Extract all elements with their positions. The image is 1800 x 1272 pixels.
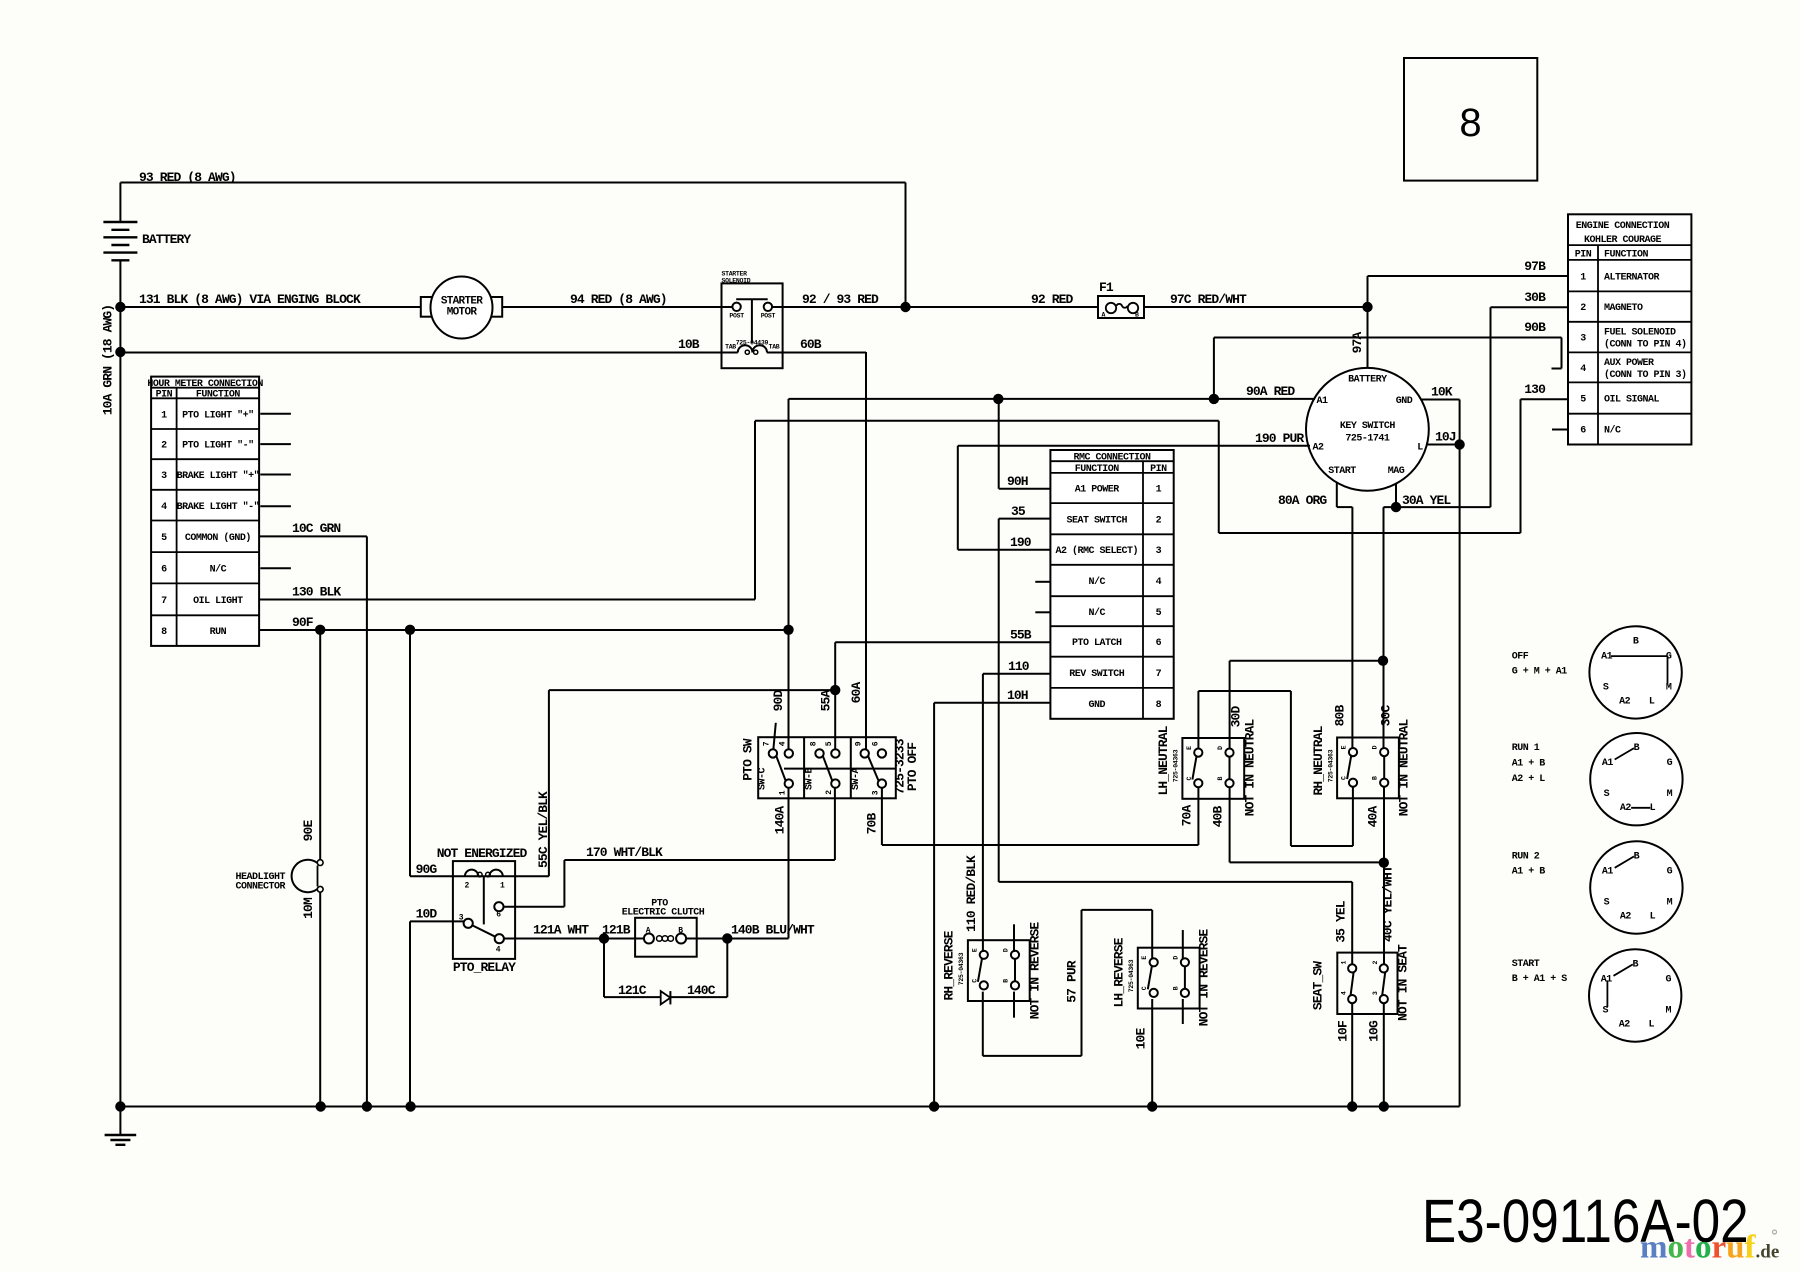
svg-text:35 YEL: 35 YEL <box>1334 900 1349 943</box>
svg-text:E: E <box>971 948 978 952</box>
svg-text:M: M <box>1666 682 1672 693</box>
svg-text:B: B <box>1633 636 1639 647</box>
svg-text:START: START <box>1512 959 1540 970</box>
svg-text:MAG: MAG <box>1388 466 1405 477</box>
svg-text:B: B <box>1632 960 1638 971</box>
svg-text:PTO LIGHT "-": PTO LIGHT "-" <box>182 440 254 452</box>
svg-text:PIN: PIN <box>1150 464 1167 475</box>
svg-text:SEAT_SW: SEAT_SW <box>1311 961 1326 1010</box>
svg-text:97B: 97B <box>1524 259 1546 274</box>
svg-text:30D: 30D <box>1229 706 1244 728</box>
svg-text:130: 130 <box>1524 382 1546 397</box>
svg-text:LH_REVERSE: LH_REVERSE <box>1112 937 1127 1007</box>
svg-text:6: 6 <box>872 741 881 746</box>
svg-text:10C GRN: 10C GRN <box>292 521 340 536</box>
svg-text:B: B <box>1135 312 1139 319</box>
svg-text:TAB: TAB <box>769 344 780 351</box>
svg-text:FUNCTION: FUNCTION <box>1604 249 1649 260</box>
svg-text:60B: 60B <box>800 337 822 352</box>
svg-text:30A YEL: 30A YEL <box>1402 493 1451 508</box>
svg-text:97C RED/WHT: 97C RED/WHT <box>1170 292 1247 307</box>
svg-text:A1 + B: A1 + B <box>1512 758 1546 769</box>
svg-text:TAB: TAB <box>725 344 736 351</box>
svg-text:PTO LATCH: PTO LATCH <box>1072 638 1122 649</box>
svg-text:3: 3 <box>1372 991 1379 995</box>
svg-text:725-1741: 725-1741 <box>1345 434 1390 445</box>
svg-text:10A GRN (18 AWG): 10A GRN (18 AWG) <box>101 305 116 415</box>
svg-text:MOTOR: MOTOR <box>447 307 478 319</box>
svg-text:RH_REVERSE: RH_REVERSE <box>942 930 957 1000</box>
svg-text:4: 4 <box>496 946 501 955</box>
svg-text:190 PUR: 190 PUR <box>1255 431 1304 446</box>
svg-text:C: C <box>1186 777 1193 781</box>
svg-text:FUNCTION: FUNCTION <box>1075 464 1120 475</box>
svg-text:POST: POST <box>761 313 776 320</box>
svg-text:725-04363: 725-04363 <box>1173 749 1180 782</box>
svg-text:10G: 10G <box>1367 1020 1382 1042</box>
svg-text:A1 POWER: A1 POWER <box>1075 485 1120 496</box>
svg-text:725-04363: 725-04363 <box>1327 749 1334 782</box>
svg-text:10F: 10F <box>1336 1020 1351 1042</box>
svg-text:F1: F1 <box>1099 280 1114 295</box>
svg-text:N/C: N/C <box>210 563 227 575</box>
svg-text:55B: 55B <box>1010 628 1032 643</box>
svg-text:RMC CONNECTION: RMC CONNECTION <box>1074 452 1152 463</box>
svg-text:90G: 90G <box>416 862 438 877</box>
svg-text:L: L <box>1417 443 1423 454</box>
svg-text:94 RED (8 AWG): 94 RED (8 AWG) <box>570 292 667 307</box>
svg-text:RUN: RUN <box>210 627 227 638</box>
svg-text:A2: A2 <box>1619 696 1631 707</box>
svg-text:B: B <box>1634 852 1640 863</box>
svg-text:6: 6 <box>1580 426 1586 437</box>
svg-text:AUX POWER: AUX POWER <box>1604 358 1654 369</box>
svg-text:90E: 90E <box>301 820 316 842</box>
svg-text:6: 6 <box>496 911 501 920</box>
svg-text:A1: A1 <box>1601 651 1613 662</box>
svg-text:S: S <box>1603 682 1609 693</box>
svg-text:70A: 70A <box>1180 805 1195 827</box>
svg-text:A2: A2 <box>1312 443 1324 454</box>
svg-text:N/C: N/C <box>1088 607 1105 619</box>
svg-text:140C: 140C <box>687 983 716 998</box>
svg-text:N/C: N/C <box>1604 425 1621 437</box>
svg-text:START: START <box>1328 466 1356 477</box>
svg-text:NOT IN NEUTRAL: NOT IN NEUTRAL <box>1243 719 1258 817</box>
svg-text:COMMON (GND): COMMON (GND) <box>185 532 251 544</box>
svg-text:4: 4 <box>1341 991 1348 995</box>
svg-text:A1 + B: A1 + B <box>1512 867 1546 878</box>
svg-text:190: 190 <box>1010 535 1032 550</box>
svg-text:B: B <box>1372 776 1379 780</box>
svg-text:A2: A2 <box>1620 912 1632 923</box>
svg-text:L: L <box>1648 1020 1654 1031</box>
svg-text:1: 1 <box>1156 485 1162 496</box>
svg-text:C: C <box>1341 776 1348 780</box>
svg-text:CONNECTOR: CONNECTOR <box>235 882 285 893</box>
svg-text:3: 3 <box>1580 334 1586 345</box>
svg-text:92 RED: 92 RED <box>1031 292 1074 307</box>
svg-text:SW-C: SW-C <box>758 768 769 791</box>
svg-text:5: 5 <box>1156 608 1162 619</box>
svg-text:D: D <box>1217 746 1224 750</box>
svg-text:NOT IN REVERSE: NOT IN REVERSE <box>1197 929 1212 1027</box>
svg-text:2: 2 <box>464 882 469 891</box>
svg-text:35: 35 <box>1011 504 1026 519</box>
svg-text:6: 6 <box>1156 638 1162 649</box>
svg-text:8: 8 <box>809 741 818 746</box>
svg-text:121C: 121C <box>618 983 647 998</box>
svg-text:PIN: PIN <box>1575 249 1592 260</box>
svg-text:4: 4 <box>1580 364 1586 375</box>
svg-text:SW-A: SW-A <box>851 768 862 791</box>
svg-text:KOHLER COURAGE: KOHLER COURAGE <box>1584 235 1662 246</box>
svg-text:NOT IN NEUTRAL: NOT IN NEUTRAL <box>1397 719 1412 817</box>
svg-text:90D: 90D <box>771 690 786 712</box>
svg-text:S: S <box>1604 789 1610 800</box>
svg-text:ALTERNATOR: ALTERNATOR <box>1604 272 1660 283</box>
svg-text:A: A <box>646 927 651 936</box>
svg-text:A1: A1 <box>1602 867 1614 878</box>
svg-text:110 RED/BLK: 110 RED/BLK <box>964 855 979 932</box>
svg-text:B + A1 + S: B + A1 + S <box>1512 974 1568 985</box>
svg-text:M: M <box>1665 1006 1671 1017</box>
svg-text:90A RED: 90A RED <box>1246 384 1295 399</box>
svg-text:KEY SWITCH: KEY SWITCH <box>1340 421 1396 432</box>
svg-text:PIN: PIN <box>156 390 173 401</box>
svg-text:E: E <box>1186 746 1193 750</box>
svg-text:MAGNETO: MAGNETO <box>1604 303 1643 314</box>
svg-text:B: B <box>1634 743 1640 754</box>
svg-text:C: C <box>971 979 978 983</box>
svg-text:10E: 10E <box>1134 1028 1149 1050</box>
svg-text:NOT ENERGIZED: NOT ENERGIZED <box>437 846 528 861</box>
svg-text:10D: 10D <box>416 907 438 922</box>
svg-text:40B: 40B <box>1211 806 1226 828</box>
svg-text:10J: 10J <box>1435 430 1456 445</box>
svg-text:ELECTRIC CLUTCH: ELECTRIC CLUTCH <box>622 908 705 919</box>
svg-text:PTO OFF: PTO OFF <box>905 742 920 791</box>
svg-text:40A: 40A <box>1366 806 1381 828</box>
svg-text:M: M <box>1667 789 1673 800</box>
svg-text:NOT IN REVERSE: NOT IN REVERSE <box>1028 922 1043 1020</box>
svg-text:S: S <box>1604 898 1610 909</box>
svg-text:10H: 10H <box>1007 688 1028 703</box>
svg-text:80B: 80B <box>1333 705 1348 727</box>
svg-text:30B: 30B <box>1524 290 1546 305</box>
svg-text:FUNCTION: FUNCTION <box>196 390 241 401</box>
svg-text:RUN 2: RUN 2 <box>1512 852 1540 863</box>
svg-text:D: D <box>1003 948 1010 952</box>
svg-text:121A WHT: 121A WHT <box>533 923 589 938</box>
svg-text:A2 (RMC SELECT): A2 (RMC SELECT) <box>1055 545 1138 557</box>
svg-text:A1: A1 <box>1601 975 1613 986</box>
svg-text:140A: 140A <box>773 806 788 835</box>
svg-text:RUN 1: RUN 1 <box>1512 743 1540 754</box>
svg-text:55C YEL/BLK: 55C YEL/BLK <box>536 791 551 868</box>
svg-text:ENGINE CONNECTION: ENGINE CONNECTION <box>1576 221 1670 232</box>
svg-text:5: 5 <box>1580 395 1586 406</box>
svg-text:PTO SW: PTO SW <box>741 738 756 781</box>
svg-text:1: 1 <box>779 790 788 795</box>
svg-text:93 RED (8 AWG): 93 RED (8 AWG) <box>139 170 236 185</box>
svg-text:G + M + A1: G + M + A1 <box>1512 667 1568 678</box>
svg-text:725-04439: 725-04439 <box>736 340 769 347</box>
svg-text:A1: A1 <box>1316 396 1328 407</box>
svg-text:1: 1 <box>1580 272 1586 283</box>
svg-text:(CONN TO PIN 3): (CONN TO PIN 3) <box>1604 369 1687 381</box>
svg-text:140B BLU/WHT: 140B BLU/WHT <box>731 923 815 938</box>
svg-text:NOT IN SEAT: NOT IN SEAT <box>1396 944 1411 1021</box>
svg-text:2: 2 <box>825 790 834 795</box>
svg-text:7: 7 <box>763 741 772 746</box>
svg-text:A2: A2 <box>1619 1020 1631 1031</box>
svg-text:N/C: N/C <box>1088 576 1105 588</box>
svg-text:3: 3 <box>1156 546 1162 557</box>
svg-text:G: G <box>1667 758 1673 769</box>
svg-text:30C: 30C <box>1379 705 1394 727</box>
svg-text:REV SWITCH: REV SWITCH <box>1069 669 1125 680</box>
svg-text:1: 1 <box>161 410 167 421</box>
svg-text:2: 2 <box>1372 961 1379 965</box>
svg-text:90B: 90B <box>1524 320 1546 335</box>
svg-text:(CONN TO PIN 4): (CONN TO PIN 4) <box>1604 339 1687 351</box>
svg-text:SOLENOID: SOLENOID <box>722 277 751 284</box>
svg-text:FUEL SOLENOID: FUEL SOLENOID <box>1604 328 1676 339</box>
svg-text:PTO LIGHT "+": PTO LIGHT "+" <box>182 409 254 421</box>
svg-text:OFF: OFF <box>1512 652 1529 663</box>
svg-text:725-04363: 725-04363 <box>1128 959 1135 992</box>
svg-text:7: 7 <box>1156 669 1162 680</box>
svg-text:4: 4 <box>1156 577 1162 588</box>
svg-text:725-04363: 725-04363 <box>958 952 965 985</box>
svg-text:A2 + L: A2 + L <box>1512 774 1546 785</box>
svg-text:55A: 55A <box>819 690 834 712</box>
svg-text:G: G <box>1667 867 1673 878</box>
svg-text:GND: GND <box>1396 396 1413 407</box>
svg-text:D: D <box>1372 745 1379 749</box>
svg-text:A: A <box>1102 312 1106 319</box>
svg-text:3: 3 <box>872 790 881 795</box>
svg-text:131 BLK (8 AWG) VIA ENGING BLO: 131 BLK (8 AWG) VIA ENGING BLOCK <box>139 292 361 307</box>
svg-text:5: 5 <box>825 741 834 746</box>
svg-text:92 / 93 RED: 92 / 93 RED <box>802 292 879 307</box>
svg-text:170 WHT/BLK: 170 WHT/BLK <box>586 845 663 860</box>
svg-text:L: L <box>1650 912 1656 923</box>
svg-text:LH_NEUTRAL: LH_NEUTRAL <box>1156 725 1171 795</box>
svg-text:90H: 90H <box>1007 474 1028 489</box>
svg-text:SW-B: SW-B <box>805 768 816 791</box>
svg-text:M: M <box>1667 898 1673 909</box>
svg-text:2: 2 <box>161 441 167 452</box>
svg-text:E: E <box>1341 745 1348 749</box>
svg-text:2: 2 <box>1580 303 1586 314</box>
svg-text:PTO_RELAY: PTO_RELAY <box>453 960 516 975</box>
svg-text:D: D <box>1172 956 1179 960</box>
svg-text:6: 6 <box>161 564 167 575</box>
svg-text:E: E <box>1141 956 1148 960</box>
svg-text:S: S <box>1602 1006 1608 1017</box>
svg-text:BRAKE LIGHT "-": BRAKE LIGHT "-" <box>177 501 260 513</box>
svg-text:57 PUR: 57 PUR <box>1065 960 1080 1003</box>
svg-text:L: L <box>1650 803 1656 814</box>
svg-text:10K: 10K <box>1431 385 1453 400</box>
svg-text:8: 8 <box>161 627 167 638</box>
svg-text:B: B <box>1172 986 1179 990</box>
svg-text:B: B <box>678 927 683 936</box>
svg-text:110: 110 <box>1008 659 1030 674</box>
svg-text:97A: 97A <box>1350 332 1365 354</box>
svg-text:G: G <box>1665 975 1671 986</box>
svg-text:POST: POST <box>729 313 744 320</box>
svg-text:GND: GND <box>1088 700 1105 711</box>
svg-text:HOUR METER CONNECTION: HOUR METER CONNECTION <box>147 379 263 390</box>
svg-text:BRAKE LIGHT "+": BRAKE LIGHT "+" <box>177 470 260 482</box>
svg-text:L: L <box>1649 696 1655 707</box>
svg-text:4: 4 <box>161 502 167 513</box>
svg-text:BATTERY: BATTERY <box>1348 375 1387 386</box>
svg-text:2: 2 <box>1156 515 1162 526</box>
svg-text:121B: 121B <box>602 923 631 938</box>
svg-text:4: 4 <box>779 741 788 746</box>
svg-text:OIL LIGHT: OIL LIGHT <box>193 596 243 607</box>
svg-text:5: 5 <box>161 533 167 544</box>
svg-text:9: 9 <box>854 741 863 746</box>
svg-text:90F: 90F <box>292 615 314 630</box>
svg-text:60A: 60A <box>849 682 864 704</box>
svg-text:B: B <box>1217 777 1224 781</box>
svg-text:A2: A2 <box>1620 803 1632 814</box>
svg-text:RH_NEUTRAL: RH_NEUTRAL <box>1311 725 1326 795</box>
svg-text:80A ORG: 80A ORG <box>1278 493 1327 508</box>
svg-text:1: 1 <box>1341 961 1348 965</box>
svg-text:OIL SIGNAL: OIL SIGNAL <box>1604 395 1660 406</box>
svg-text:SEAT SWITCH: SEAT SWITCH <box>1066 515 1127 526</box>
svg-text:1: 1 <box>500 882 505 891</box>
svg-text:3: 3 <box>161 471 167 482</box>
svg-text:8: 8 <box>1459 101 1481 145</box>
svg-text:3: 3 <box>459 914 464 923</box>
svg-text:10B: 10B <box>678 337 700 352</box>
svg-text:A1: A1 <box>1602 758 1614 769</box>
svg-text:7: 7 <box>161 596 167 607</box>
svg-text:8: 8 <box>1156 700 1162 711</box>
svg-text:10M: 10M <box>301 897 316 919</box>
svg-text:70B: 70B <box>865 813 880 835</box>
svg-text:130 BLK: 130 BLK <box>292 585 341 600</box>
svg-text:C: C <box>1141 986 1148 990</box>
svg-text:B: B <box>1003 979 1010 983</box>
svg-text:BATTERY: BATTERY <box>142 232 191 247</box>
svg-text:40C YEL/WHT: 40C YEL/WHT <box>1381 865 1396 942</box>
